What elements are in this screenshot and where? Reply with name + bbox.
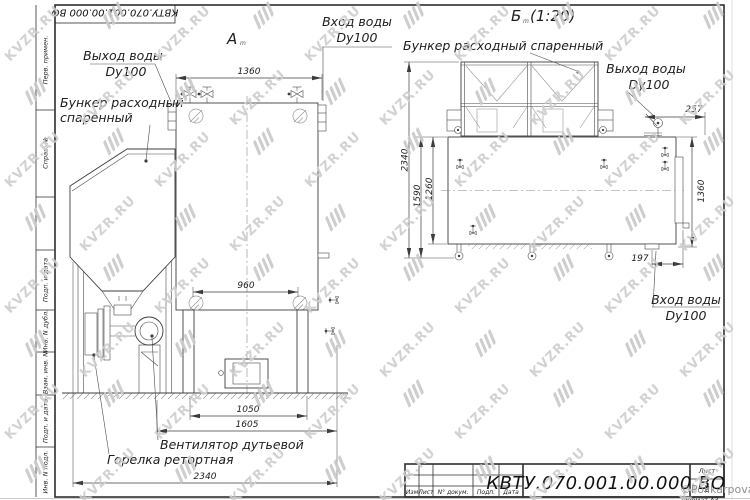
label-water-outlet: Выход воды — [83, 48, 163, 63]
label-hopper-line2: спаренный — [60, 110, 133, 125]
view-a: А m — [60, 14, 392, 487]
dim-1605: 1605 — [236, 420, 259, 430]
label-hopper-line1: Бункер расходный — [60, 95, 184, 110]
top-designation-text: КВТУ.070.001.00.000 ВО — [51, 7, 178, 18]
valve-icon — [325, 328, 335, 334]
dim-1360-right: 1360 — [697, 179, 707, 202]
valve-icon — [329, 297, 339, 303]
title-col-list: Лист — [417, 489, 434, 496]
dim-2340-left: 2340 — [401, 148, 411, 171]
fan-burner-assembly — [85, 306, 163, 393]
top-valves — [181, 87, 303, 103]
dim-960: 960 — [237, 281, 254, 291]
twin-hopper — [447, 62, 613, 136]
view-a-label-mark: m — [240, 40, 246, 47]
dim-1590: 1590 — [413, 184, 423, 207]
inlet-channel — [675, 157, 689, 228]
margin-field-vzam-inv: Взам. инв. N — [42, 352, 50, 394]
top-designation-box: КВТУ.070.001.00.000 ВО — [51, 5, 178, 23]
margin-field-inv-podl: Инв. N подл. — [42, 451, 50, 494]
dim-2340-bottom: 2340 — [194, 472, 217, 482]
side-fittings — [318, 253, 339, 334]
view-a-label: А — [226, 30, 237, 48]
title-block: Изм Лист N° докум. Подп. Дата КВТУ.070.0… — [405, 464, 726, 500]
label-water-outlet-dn: Dy100 — [106, 64, 147, 79]
label-water-inlet: Вход воды — [322, 14, 392, 29]
margin-fields: Перв. примен. Справ. № Подп. и дата Инв.… — [42, 36, 50, 494]
title-col-izm: Изм — [406, 489, 419, 496]
label-fan: Вентилятор дутьевой — [160, 437, 304, 452]
drawing-sheet: KVZR.RU KVZR.RU — [0, 0, 750, 500]
water-inlet-flange — [318, 105, 326, 131]
title-col-doc: N° докум. — [438, 489, 469, 496]
view-b-label-mark: m — [523, 18, 529, 25]
valve-icon — [288, 87, 303, 103]
valve-icon — [198, 87, 213, 103]
boiler-base — [183, 310, 308, 393]
margin-field-perv-primen: Перв. примен. — [42, 36, 50, 85]
label-water-outlet-b: Выход воды — [606, 61, 686, 76]
view-b-scale: (1:20) — [530, 7, 575, 25]
margin-field-podp-data-2: Подп. и дата — [42, 399, 50, 443]
view-b: Б m (1:20) — [401, 7, 722, 323]
view-b-label: Б — [511, 7, 521, 25]
outlet-fitting — [644, 119, 663, 138]
title-sheet-label: Лист — [698, 467, 716, 475]
title-format: Формат А3 — [681, 496, 718, 500]
margin-field-podp-data-1: Подп. и дата — [42, 258, 50, 302]
margin-field-sprav: Справ. № — [42, 137, 50, 169]
hopper-feed-bin — [70, 149, 175, 315]
dim-1360-top: 1360 — [238, 67, 261, 77]
label-water-inlet-b-dn: Dy100 — [666, 308, 707, 323]
label-water-inlet-b: Вход воды — [651, 292, 721, 307]
label-burner: Горелка ретортная — [107, 452, 234, 467]
label-water-inlet-dn: Dy100 — [337, 30, 378, 45]
dim-1260: 1260 — [425, 177, 435, 200]
label-hopper-b: Бункер расходный спаренный — [403, 38, 603, 53]
technical-drawing-svg: KVZR.RU KVZR.RU — [0, 0, 750, 500]
dim-1050: 1050 — [237, 405, 260, 415]
dim-257: 257 — [685, 105, 702, 115]
dim-197: 197 — [631, 254, 648, 264]
margin-field-inv-dubl: Инв. N дубл. — [42, 310, 50, 353]
copyright-text: ©PolikarpovaMG2021 — [680, 483, 750, 496]
boiler-side-body — [441, 137, 684, 249]
label-water-outlet-b-dn: Dy100 — [629, 77, 670, 92]
ground-line — [62, 393, 348, 399]
